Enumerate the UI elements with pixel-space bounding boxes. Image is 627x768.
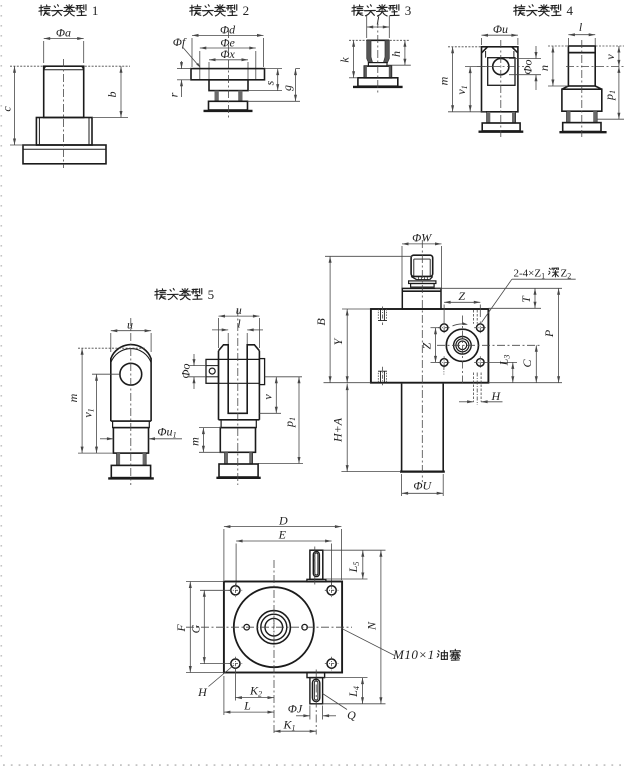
svg-text:b: b: [105, 92, 119, 98]
svg-text:B: B: [314, 318, 328, 326]
svg-text:G: G: [188, 624, 202, 633]
svg-text:3: 3: [405, 3, 412, 18]
svg-text:2-4×Z1: 2-4×Z1: [514, 268, 546, 281]
svg-text:Φx: Φx: [220, 47, 235, 61]
svg-text:C: C: [520, 359, 534, 368]
svg-text:4: 4: [567, 3, 574, 18]
svg-text:g: g: [280, 85, 294, 91]
svg-text:c: c: [0, 106, 14, 112]
svg-text:ΦU: ΦU: [413, 479, 432, 493]
svg-text:s: s: [263, 80, 277, 85]
svg-text:l: l: [579, 20, 583, 34]
svg-text:N: N: [365, 621, 379, 631]
svg-text:H+A: H+A: [331, 417, 345, 443]
svg-text:m: m: [437, 76, 451, 85]
svg-text:v: v: [603, 54, 617, 60]
svg-text:ΦJ: ΦJ: [288, 702, 303, 716]
svg-text:H: H: [197, 685, 208, 699]
svg-text:Φu: Φu: [493, 22, 508, 36]
svg-text:Φf: Φf: [173, 35, 187, 49]
svg-text:u: u: [236, 303, 242, 317]
svg-text:Φa: Φa: [56, 26, 71, 40]
svg-text:K2: K2: [249, 684, 262, 699]
svg-text:Z: Z: [420, 342, 434, 349]
svg-text:H: H: [490, 389, 501, 403]
svg-text:F: F: [174, 624, 188, 633]
svg-text:2: 2: [243, 3, 250, 18]
svg-text:Φu1: Φu1: [157, 425, 176, 440]
svg-text:h: h: [389, 51, 403, 57]
svg-text:L4: L4: [346, 686, 361, 698]
svg-text:r: r: [167, 92, 181, 97]
svg-text:u: u: [127, 318, 133, 332]
svg-text:Y: Y: [331, 337, 345, 345]
svg-text:m: m: [187, 437, 201, 446]
svg-text:n: n: [537, 65, 551, 71]
svg-text:L: L: [243, 698, 251, 712]
svg-text:M10×1: M10×1: [392, 647, 435, 662]
svg-text:Z2: Z2: [561, 268, 572, 281]
svg-text:1: 1: [92, 3, 99, 18]
svg-text:p1: p1: [282, 417, 297, 428]
svg-text:K1: K1: [282, 717, 295, 732]
svg-text:m: m: [66, 393, 80, 402]
svg-text:v1: v1: [81, 408, 96, 417]
svg-text:Φo: Φo: [179, 363, 193, 378]
svg-text:L5: L5: [346, 562, 361, 574]
svg-text:L3: L3: [497, 355, 512, 367]
svg-text:v1: v1: [454, 85, 469, 94]
svg-text:p1: p1: [602, 90, 617, 101]
svg-text:k: k: [337, 57, 351, 63]
svg-text:Z: Z: [458, 289, 465, 303]
svg-text:5: 5: [208, 287, 215, 302]
svg-text:P: P: [542, 329, 556, 338]
svg-text:Q: Q: [347, 708, 356, 722]
svg-text:T: T: [519, 295, 533, 303]
svg-text:E: E: [278, 528, 287, 542]
svg-text:D: D: [278, 513, 288, 527]
svg-text:v: v: [261, 394, 275, 400]
